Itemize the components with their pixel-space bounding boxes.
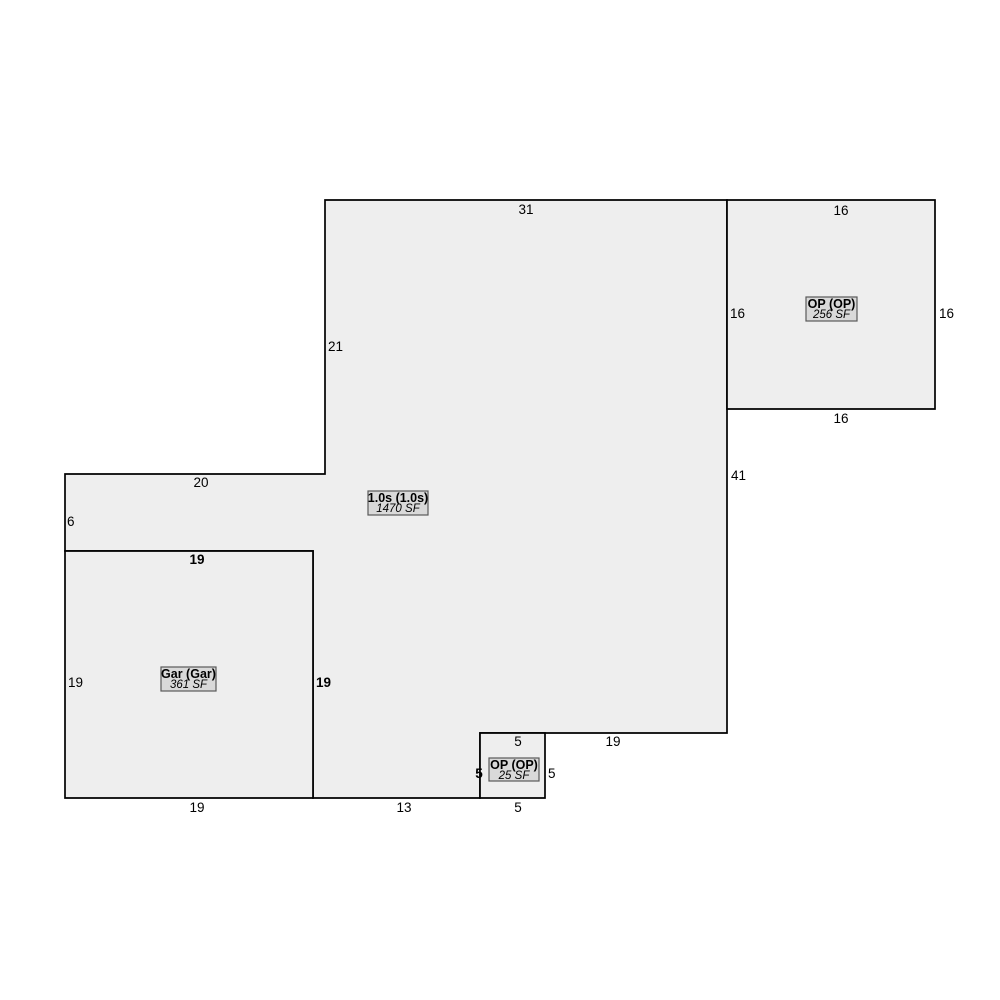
floor-plan-sketch: 312141161616162061919191913195555 1.0s (…	[0, 0, 1000, 1000]
dimension-main-upper-left: 21	[328, 339, 343, 354]
dimension-porch-large-right: 16	[939, 306, 954, 321]
dimension-garage-top: 19	[189, 552, 204, 567]
dimension-main-strip-left: 6	[67, 514, 75, 529]
dimension-porch-small-bottom: 5	[514, 800, 522, 815]
dimension-main-bottom-right: 19	[605, 734, 620, 749]
dimension-porch-large-bottom: 16	[833, 411, 848, 426]
dimension-porch-large-left: 16	[730, 306, 745, 321]
dimension-main-bottom-middle: 13	[396, 800, 411, 815]
garage-area-sf: 361 SF	[170, 679, 208, 691]
dimension-main-strip-top: 20	[193, 475, 208, 490]
main-living-area-area-sf: 1470 SF	[376, 503, 420, 515]
dimension-porch-large-top: 16	[833, 203, 848, 218]
dimension-garage-right: 19	[316, 675, 331, 690]
open-porch-small-area-sf: 25 SF	[498, 770, 531, 782]
dimension-main-right: 41	[731, 468, 746, 483]
regions-layer	[65, 200, 935, 798]
dimension-garage-bottom: 19	[189, 800, 204, 815]
dimension-garage-left: 19	[68, 675, 83, 690]
dimension-porch-small-right: 5	[548, 766, 556, 781]
open-porch-large-area-sf: 256 SF	[812, 309, 851, 321]
floor-plan-svg: 312141161616162061919191913195555 1.0s (…	[0, 0, 1000, 1000]
dimension-main-top: 31	[518, 202, 533, 217]
dimension-porch-small-top: 5	[514, 734, 522, 749]
dimension-porch-small-left: 5	[475, 766, 483, 781]
